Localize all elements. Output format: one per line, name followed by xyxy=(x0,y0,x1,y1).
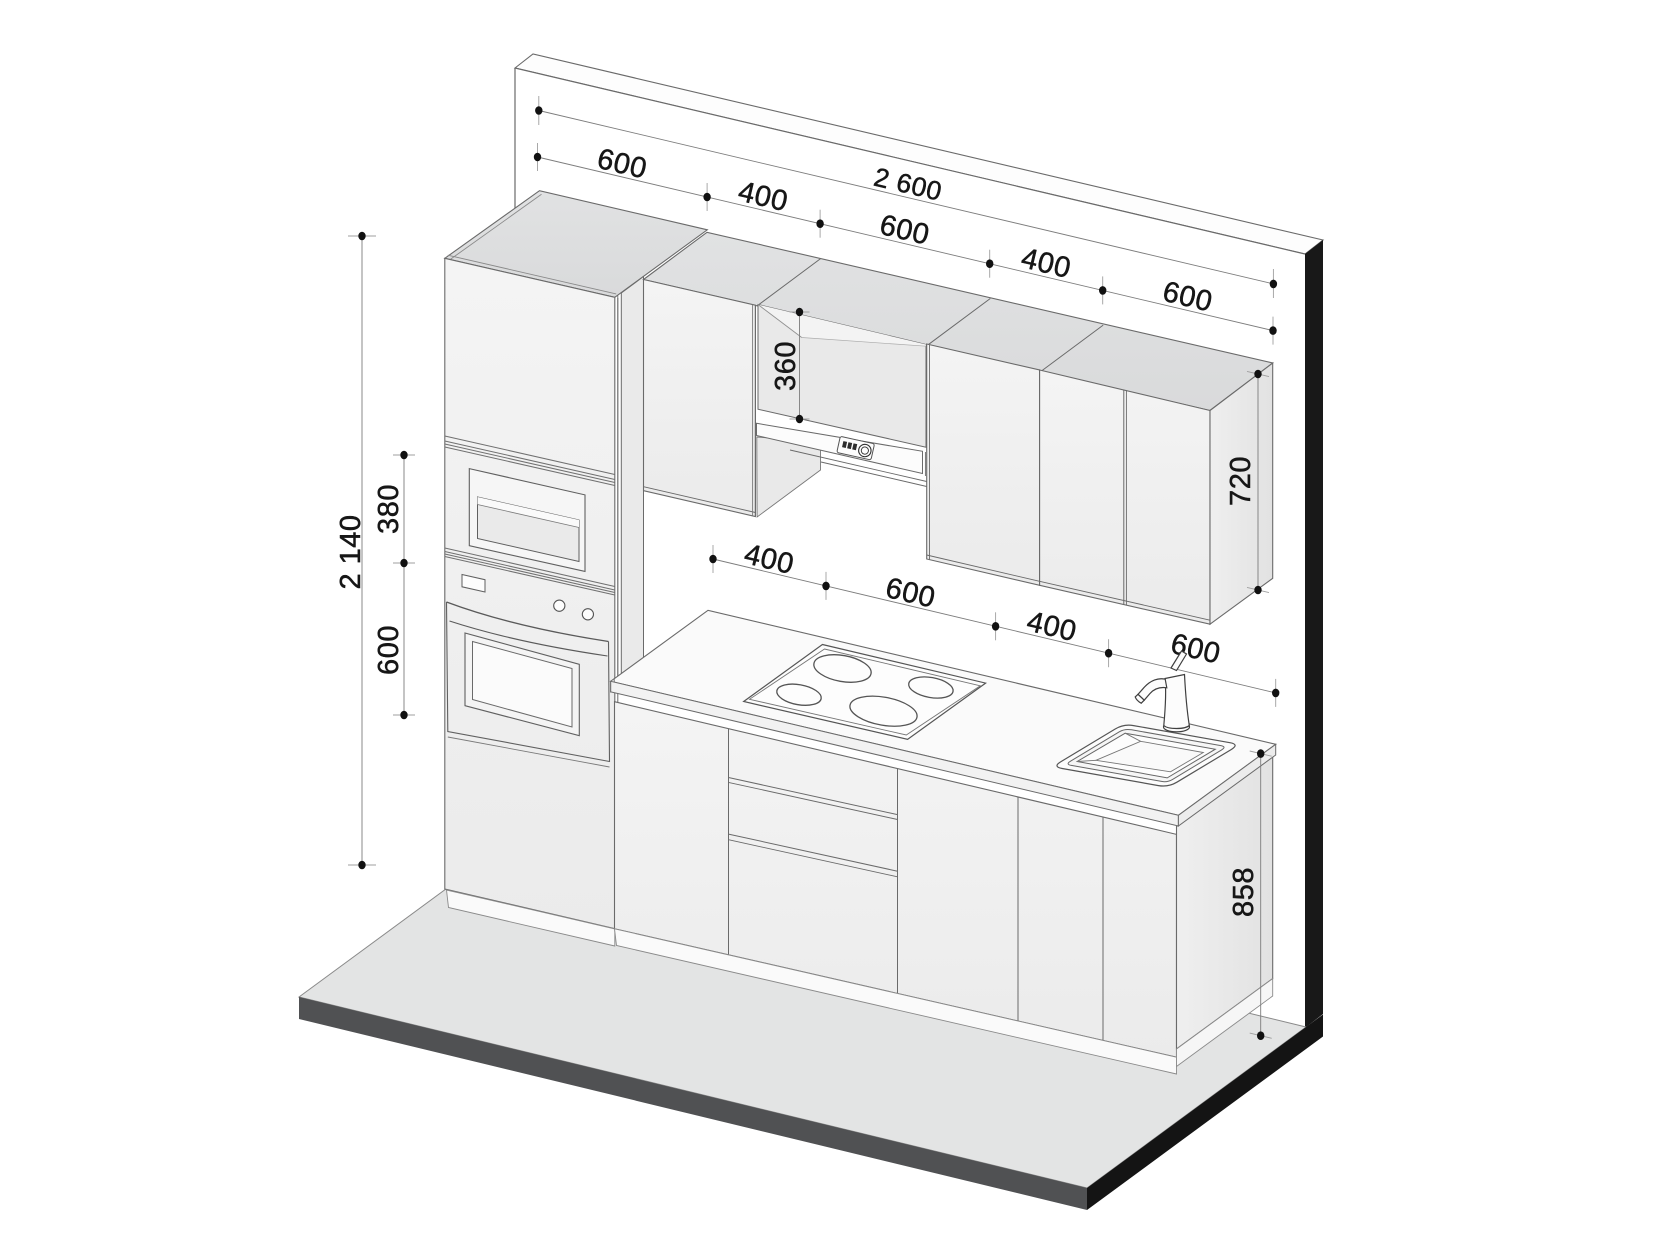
svg-text:720: 720 xyxy=(1225,456,1257,506)
svg-text:380: 380 xyxy=(373,484,405,534)
svg-text:600: 600 xyxy=(373,625,405,675)
svg-text:2 140: 2 140 xyxy=(335,514,367,589)
svg-text:360: 360 xyxy=(770,341,802,391)
svg-text:858: 858 xyxy=(1228,867,1260,917)
